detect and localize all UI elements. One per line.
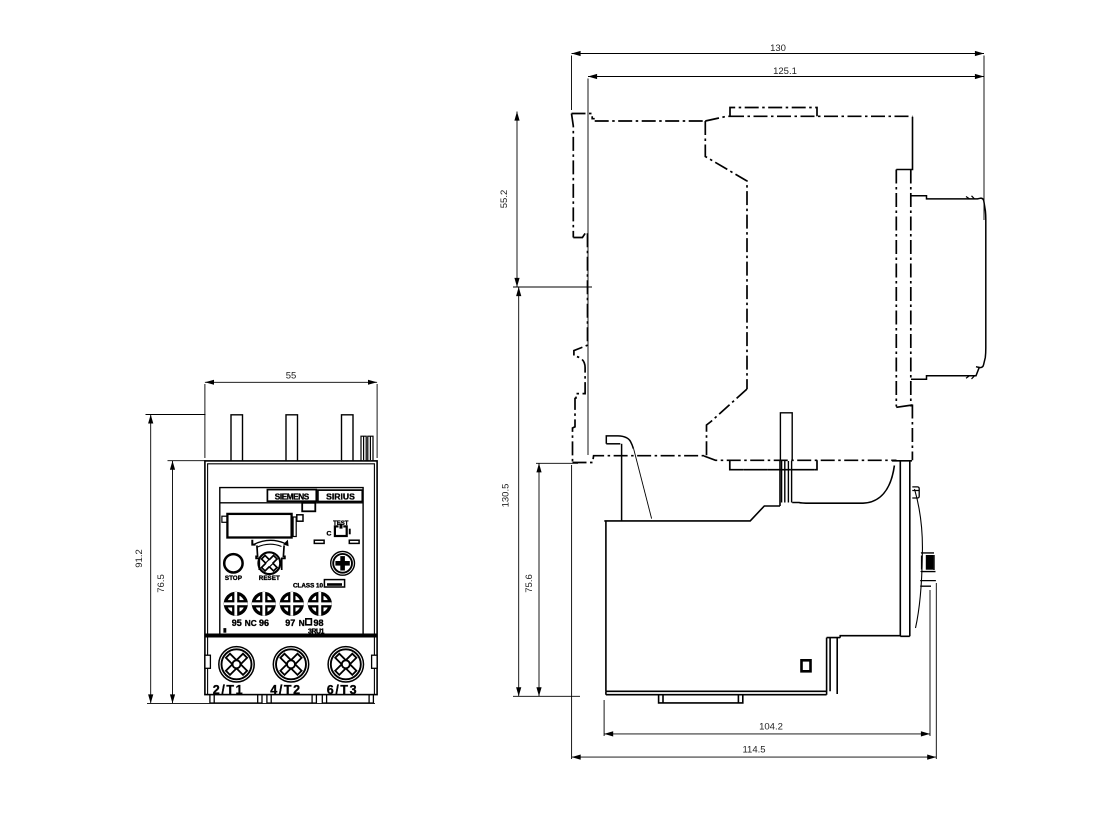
svg-text:97: 97 bbox=[285, 618, 295, 628]
svg-text:4/T2: 4/T2 bbox=[270, 683, 301, 697]
svg-text:104.2: 104.2 bbox=[759, 722, 783, 733]
svg-text:114.5: 114.5 bbox=[742, 745, 765, 756]
svg-text:N: N bbox=[299, 619, 305, 628]
svg-text:130: 130 bbox=[770, 43, 786, 54]
svg-text:76.5: 76.5 bbox=[156, 574, 167, 593]
svg-text:6/T3: 6/T3 bbox=[327, 683, 358, 697]
svg-text:55.2: 55.2 bbox=[499, 190, 510, 209]
svg-text:SIEMENS: SIEMENS bbox=[275, 492, 310, 501]
svg-text:2/T1: 2/T1 bbox=[213, 683, 244, 697]
svg-text:96: 96 bbox=[259, 618, 269, 628]
svg-text:SIRIUS: SIRIUS bbox=[326, 491, 355, 501]
svg-text:CLASS 10: CLASS 10 bbox=[293, 583, 324, 590]
svg-text:95: 95 bbox=[232, 618, 242, 628]
svg-text:91.2: 91.2 bbox=[134, 549, 145, 568]
svg-text:98: 98 bbox=[313, 618, 323, 628]
svg-text:75.6: 75.6 bbox=[524, 574, 535, 593]
svg-text:125.1: 125.1 bbox=[773, 66, 797, 77]
svg-text:130.5: 130.5 bbox=[501, 484, 512, 508]
svg-text:NC: NC bbox=[245, 619, 257, 628]
svg-text:C: C bbox=[326, 531, 331, 538]
svg-text:STOP: STOP bbox=[225, 575, 242, 582]
svg-text:RESET: RESET bbox=[259, 575, 280, 582]
svg-text:55: 55 bbox=[286, 371, 297, 382]
